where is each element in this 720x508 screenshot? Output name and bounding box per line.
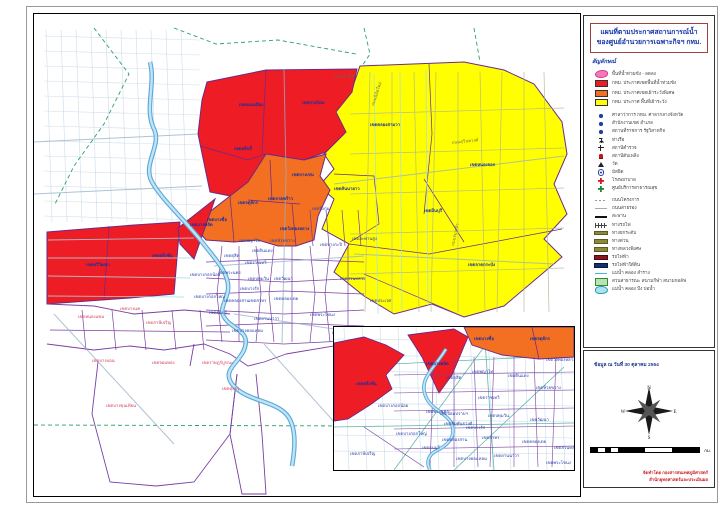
district-label: เขตคลองเตย xyxy=(274,296,299,301)
cross-black-icon xyxy=(594,144,608,152)
district-label: เขตประเวศ xyxy=(370,298,391,303)
orange-swatch-icon xyxy=(594,89,608,97)
circle-dot-icon xyxy=(594,168,608,176)
district-label: เขตบางกอกใหญ่ xyxy=(194,294,225,299)
pink-blob-icon xyxy=(594,70,608,78)
legend-panel: แผนที่ตามประกาศสถานการณ์น้ำ ของศูนย์อำนว… xyxy=(583,15,715,348)
legend-item: สวนสาธารณะ สนามกีฬา สนามกอล์ฟ xyxy=(594,278,714,286)
legend-item: แม่น้ำ คลอง ลำราง xyxy=(594,270,714,278)
district-label: เขตดินแดง xyxy=(508,373,529,378)
district-label: เขตบางกอกน้อย xyxy=(190,272,221,277)
district-label: เขตพระโขนง xyxy=(546,459,571,465)
red-swatch-icon xyxy=(594,80,608,88)
district-label: เขตพระนคร xyxy=(218,270,241,275)
legend-item-label: ศูนย์บริการสาธารณสุข xyxy=(612,185,657,192)
district-label: เขตสาทร xyxy=(482,435,500,440)
district-label: เขตบางกอกใหญ่ xyxy=(396,431,427,436)
dot-blue-icon xyxy=(594,120,608,128)
line-darkred-icon xyxy=(594,253,608,261)
district-label: เขตหนองจอก xyxy=(470,162,496,167)
district-label: เขตยานนาวา xyxy=(254,316,279,321)
district-label: เขตหนองแขม xyxy=(78,314,104,319)
legend-item: ถนนโครงการ xyxy=(594,197,714,205)
legend-item-label: สวนสาธารณะ สนามกีฬา สนามกอล์ฟ xyxy=(612,278,686,285)
triangle-black-icon xyxy=(594,160,608,168)
district-label: เขตดินแดง xyxy=(252,248,273,253)
area-flood-red-west xyxy=(47,222,180,304)
district-label: เขตสัมพันธวงศ์ xyxy=(444,421,473,426)
legend-item: ทางหลวงพิเศษ xyxy=(594,245,714,253)
district-label: เขตพญาไท xyxy=(239,238,260,243)
scale-bar-area: กม. xyxy=(590,447,700,461)
district-label: เขตวัฒนา xyxy=(530,417,549,422)
line-black-icon xyxy=(594,213,608,221)
district-label: เขตบางคอแหลม xyxy=(456,456,487,461)
inset-canvas: เขตตลิ่งชันเขตบางพลัดเขตบางซื่อเขตจตุจัก… xyxy=(334,327,574,470)
legend-items: พื้นที่น้ำท่วมขัง - ลดลงกทม. ประกาศเขตพื… xyxy=(594,69,714,293)
legend-item: รถไฟฟ้า xyxy=(594,253,714,261)
district-label: เขตสวนหลวง xyxy=(554,445,574,450)
legend-item-label: โรงพยาบาล xyxy=(612,177,636,184)
district-label: เขตห้วยขวาง xyxy=(536,385,561,390)
cross-green-icon xyxy=(594,185,608,193)
district-label: เขตตลิ่งชัน xyxy=(152,252,173,258)
legend-item-label: แม่น้ำ คลอง บึง บ่อน้ำ xyxy=(612,286,655,293)
legend-item-label: ทางหลวงพิเศษ xyxy=(612,246,641,253)
inset-map: เขตตลิ่งชันเขตบางพลัดเขตบางซื่อเขตจตุจัก… xyxy=(333,326,575,471)
legend-item-label: กทม. ประกาศเขตพื้นที่น้ำท่วมขัง xyxy=(612,80,676,87)
district-label: เขตบางรัก xyxy=(240,286,260,291)
district-label: เขตคลองสาน xyxy=(224,298,249,303)
legend-item: โรงพยาบาล xyxy=(594,177,714,185)
legend-item-label: รถไฟฟ้า xyxy=(612,254,629,261)
district-label: เขตบางกอกน้อย xyxy=(378,403,409,408)
legend-item-label: สถานีดับเพลิง xyxy=(612,153,639,160)
district-label: เขตวัฒนา xyxy=(274,276,293,281)
line-thin-gray-icon xyxy=(594,205,608,213)
legend-item-label: ถนนสายรอง xyxy=(612,205,637,212)
legend-item-label: ทางยกระดับ xyxy=(612,230,636,237)
cross-red-icon xyxy=(594,177,608,185)
district-label: เขตบางกะปิ xyxy=(320,242,342,247)
district-label: เขตบางแค xyxy=(120,306,140,311)
legend-item: สถานีดับเพลิง xyxy=(594,152,714,160)
district-label: เขตภาษีเจริญ xyxy=(146,320,172,325)
legend-item-label: รถไฟฟ้าใต้ดิน xyxy=(612,262,640,269)
water-blob-icon xyxy=(594,286,608,294)
district-label: เขตคันนายาว xyxy=(334,186,360,191)
map-sheet-page: เขตดอนเมืองเขตสายไหมเขตหลักสี่เขตบางเขนเ… xyxy=(0,0,720,508)
legend-item-label: ศาลาว่าการ กทม. ศาลากลางจังหวัด xyxy=(612,112,683,119)
map-title-line1: แผนที่ตามประกาศสถานการณ์น้ำ xyxy=(593,28,705,38)
yellow-swatch-icon xyxy=(594,99,608,107)
legend-item: มัสยิด xyxy=(594,168,714,176)
legend-item-label: ทางด่วน xyxy=(612,238,629,245)
legend-item-label: สำนักงานเขต อำเภอ xyxy=(612,120,653,127)
legend-item-label: แม่น้ำ คลอง ลำราง xyxy=(612,270,650,277)
dot-blue-icon xyxy=(594,128,608,136)
district-label: เขตภาษีเจริญ xyxy=(350,451,376,456)
district-label: เขตป้อมปราบฯ xyxy=(440,411,469,416)
district-label: เขตทวีวัฒนา xyxy=(86,262,111,267)
district-label: เขตพระโขนง xyxy=(310,311,335,317)
data-date: ข้อมูล ณ วันที่ 30 ตุลาคม 2554 xyxy=(594,361,714,369)
scale-bar: กม. xyxy=(590,447,700,453)
legend-item: กทม. ประกาศเขตเฝ้าระวังพิเศษ xyxy=(594,89,714,99)
line-olive-icon xyxy=(594,245,608,253)
legend-item-label: มัสยิด xyxy=(612,169,624,176)
scale-unit: กม. xyxy=(704,447,711,454)
legend-item: ศูนย์บริการสาธารณสุข xyxy=(594,185,714,193)
sheet-border: เขตดอนเมืองเขตสายไหมเขตหลักสี่เขตบางเขนเ… xyxy=(26,6,718,503)
legend-item-label: กทม. ประกาศ พื้นที่เฝ้าระวัง xyxy=(612,99,667,106)
scale-tick-labels xyxy=(590,454,700,461)
district-label: เขตบางพลัด xyxy=(426,361,449,366)
district-label: เขตคลองสาน xyxy=(442,437,467,442)
legend-header: สัญลักษณ์ xyxy=(592,58,714,66)
legend-item-label: สถานที่ราชการ รัฐวิสาหกิจ xyxy=(612,128,665,135)
legend-item-label: สะพาน xyxy=(612,213,626,220)
legend-item: ท่าเรือ xyxy=(594,136,714,144)
district-label: เขตวังทองหลาง xyxy=(546,357,574,362)
district-label: เขตบางซื่อ xyxy=(474,335,494,341)
legend-item: กทม. ประกาศเขตพื้นที่น้ำท่วมขัง xyxy=(594,79,714,89)
legend-item: ทางด่วน xyxy=(594,237,714,245)
credit-line2: สำนักยุทธศาสตร์และประเมินผล xyxy=(643,477,708,483)
district-label: เขตบางพลัด xyxy=(190,222,213,227)
credits: จัดทำโดย กองสารสนเทศภูมิศาสตร์ สำนักยุทธ… xyxy=(643,470,708,483)
district-label: เขตสาทร xyxy=(249,298,267,303)
credit-line1: จัดทำโดย กองสารสนเทศภูมิศาสตร์ xyxy=(643,470,708,476)
line-rail-icon xyxy=(594,221,608,229)
district-label: เขตตลิ่งชัน xyxy=(356,380,377,386)
compass-rose: N E S W xyxy=(584,383,714,439)
legend-item: รถไฟฟ้าใต้ดิน xyxy=(594,261,714,269)
line-navy-icon xyxy=(594,261,608,269)
district-label: เขตหลักสี่ xyxy=(234,145,252,151)
district-label: เขตลาดพร้าว xyxy=(268,195,294,201)
line-olive-icon xyxy=(594,237,608,245)
district-label: เขตสายไหม xyxy=(302,99,325,105)
district-label: เขตบางคอแหลม xyxy=(232,328,263,333)
district-label: เขตบางบอน xyxy=(92,358,115,363)
district-label: เขตสวนหลวง xyxy=(340,276,365,281)
district-label: เขตวังทองหลาง xyxy=(280,226,309,231)
legend-item-label: ถนนโครงการ xyxy=(612,197,639,204)
anchor-icon xyxy=(594,136,608,144)
dot-blue-icon xyxy=(594,112,608,120)
district-label: เขตราชเทวี xyxy=(478,395,500,400)
compass-w: W xyxy=(621,410,626,415)
legend-item-label: ทางรถไฟ xyxy=(612,222,631,229)
district-label: เขตลาดกระบัง xyxy=(468,262,495,267)
district-label: เขตพญาไท xyxy=(472,369,493,374)
district-label: เขตจอมทอง xyxy=(152,360,175,365)
legend-item: สำนักงานเขต อำเภอ xyxy=(594,120,714,128)
legend-item: ศาลาว่าการ กทม. ศาลากลางจังหวัด xyxy=(594,112,714,120)
legend-item: สถานีตำรวจ xyxy=(594,144,714,152)
district-label: เขตคลองสามวา xyxy=(370,122,401,127)
compass-e: E xyxy=(673,410,676,415)
compass-n: N xyxy=(647,386,651,391)
legend-item: ถนนสายรอง xyxy=(594,205,714,213)
legend-item: วัด xyxy=(594,160,714,168)
legend-item-label: กทม. ประกาศเขตเฝ้าระวังพิเศษ xyxy=(612,90,674,97)
info-panel: ข้อมูล ณ วันที่ 30 ตุลาคม 2554 N E S W xyxy=(583,350,715,488)
legend-item: พื้นที่น้ำท่วมขัง - ลดลง xyxy=(594,69,714,79)
legend-item-label: ท่าเรือ xyxy=(612,137,624,144)
park-rect-icon xyxy=(594,278,608,286)
district-label: เขตราชเทวี xyxy=(245,260,267,265)
district-label: เขตคลองเตย xyxy=(522,439,547,444)
legend-item: สถานที่ราชการ รัฐวิสาหกิจ xyxy=(594,128,714,136)
legend-item-label: พื้นที่น้ำท่วมขัง - ลดลง xyxy=(612,71,656,78)
legend-item: กทม. ประกาศ พื้นที่เฝ้าระวัง xyxy=(594,98,714,108)
district-label: เขตห้วยขวาง xyxy=(270,238,295,243)
legend-item: ทางยกระดับ xyxy=(594,229,714,237)
legend-item: แม่น้ำ คลอง บึง บ่อน้ำ xyxy=(594,286,714,294)
map-title-line2: ของศูนย์อำนวยการเฉพาะกิจฯ กทม. xyxy=(593,38,705,48)
legend-item: สะพาน xyxy=(594,213,714,221)
hydrant-red-icon xyxy=(594,152,608,160)
district-label: เขตดอนเมือง xyxy=(239,102,264,107)
district-label: เขตบางเขน xyxy=(292,172,314,177)
district-label: เขตยานนาวา xyxy=(494,453,519,458)
map-title: แผนที่ตามประกาศสถานการณ์น้ำ ของศูนย์อำนว… xyxy=(590,23,708,53)
line-cyan-icon xyxy=(594,270,608,278)
compass-s: S xyxy=(648,436,651,439)
legend-item-label: วัด xyxy=(612,161,618,168)
legend-item-label: สถานีตำรวจ xyxy=(612,145,637,152)
legend-item: ทางรถไฟ xyxy=(594,221,714,229)
line-olive-icon xyxy=(594,229,608,237)
line-dash-gray-icon xyxy=(594,197,608,205)
